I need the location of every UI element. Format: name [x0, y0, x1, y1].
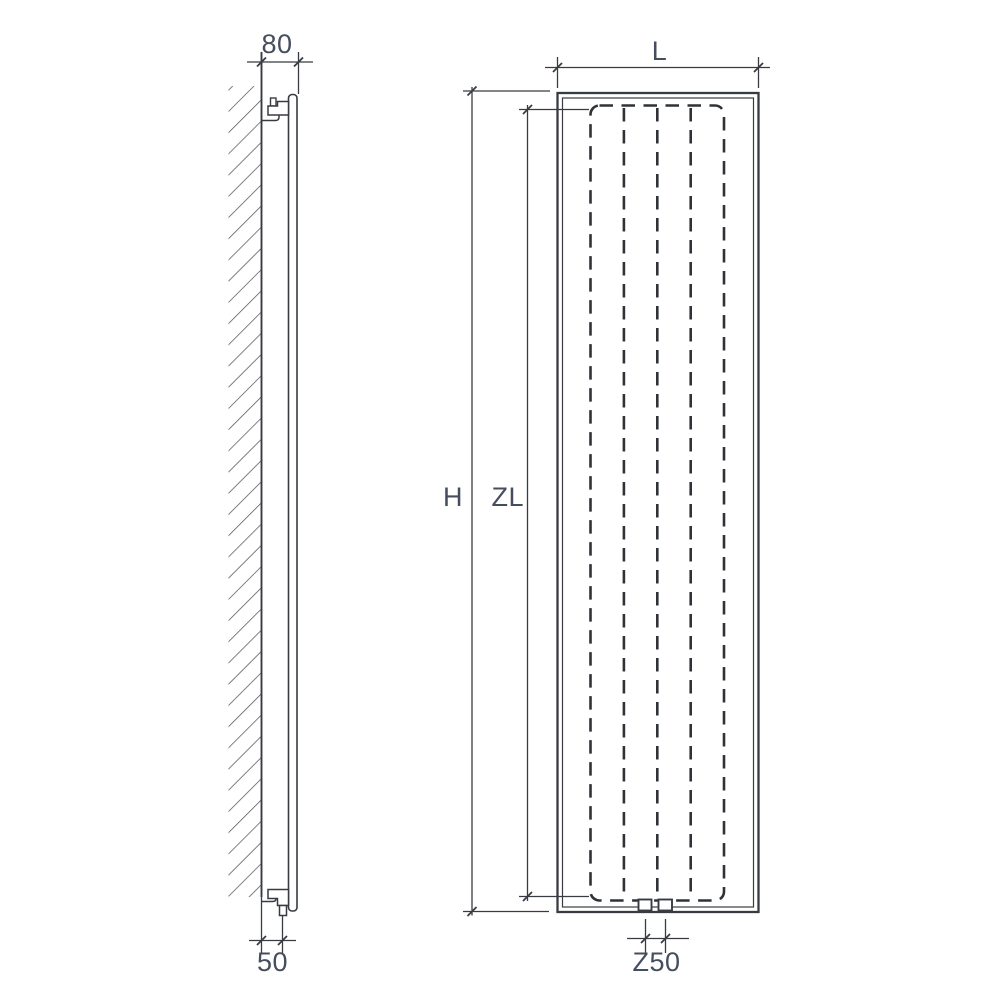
bottom-bracket-arm — [268, 890, 289, 906]
front-view: L H ZL Z50 — [443, 36, 770, 977]
radiator-outline — [558, 93, 759, 912]
connection-stub-right — [659, 900, 673, 911]
dimension-50-label: 50 — [257, 947, 288, 977]
dimension-L: L — [545, 36, 770, 88]
dimension-H-label: H — [443, 482, 463, 512]
dimension-ZL-label: ZL — [491, 482, 524, 512]
radiator-panel-side — [289, 95, 298, 912]
bottom-connection-stub — [280, 906, 287, 916]
drawing-svg: 80 50 — [0, 0, 1000, 1000]
top-wall-bracket — [262, 98, 289, 121]
dimension-Z50: Z50 — [627, 919, 689, 977]
dimension-L-label: L — [652, 36, 668, 66]
bottom-wall-bracket — [262, 890, 289, 916]
side-view: 80 50 — [229, 29, 314, 977]
dimension-80: 80 — [247, 29, 313, 94]
dimension-Z50-label: Z50 — [632, 947, 680, 977]
top-bracket-pin — [271, 98, 277, 106]
top-bracket-lip — [262, 115, 280, 121]
connection-stub-left — [639, 900, 652, 911]
wall-hatching — [229, 86, 262, 897]
dimension-80-label: 80 — [261, 29, 292, 59]
radiator-dimension-drawing: 80 50 — [0, 0, 1000, 1000]
